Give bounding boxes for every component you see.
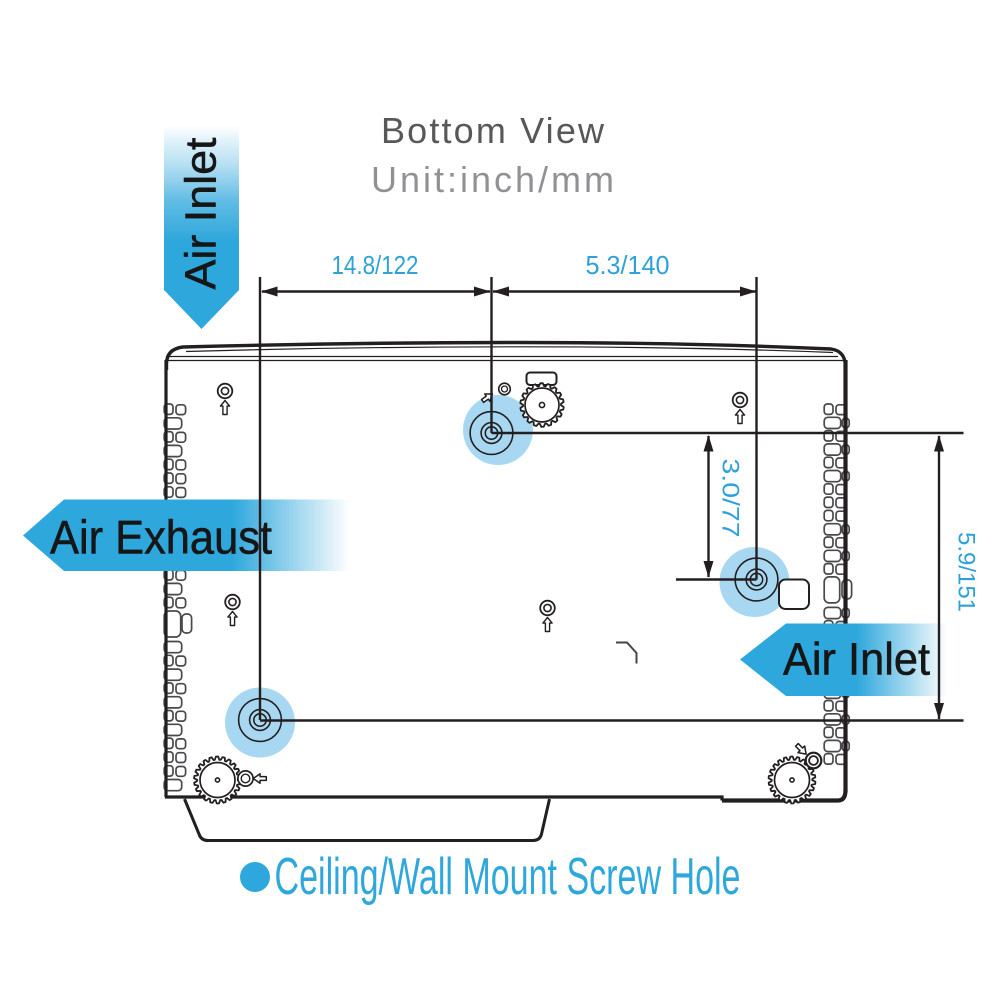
svg-text:Air Exhaust: Air Exhaust [50, 511, 272, 564]
svg-text:Air Inlet: Air Inlet [177, 138, 226, 290]
svg-text:14.8/122: 14.8/122 [332, 250, 419, 280]
svg-text:Ceiling/Wall Mount Screw Hole: Ceiling/Wall Mount Screw Hole [275, 848, 741, 906]
svg-text:Unit:inch/mm: Unit:inch/mm [371, 159, 614, 200]
svg-text:5.9/151: 5.9/151 [953, 532, 980, 612]
svg-text:5.3/140: 5.3/140 [586, 250, 670, 280]
svg-text:Bottom View: Bottom View [381, 110, 605, 151]
svg-text:Air Inlet: Air Inlet [783, 634, 930, 685]
svg-text:3.0/77: 3.0/77 [717, 459, 744, 538]
